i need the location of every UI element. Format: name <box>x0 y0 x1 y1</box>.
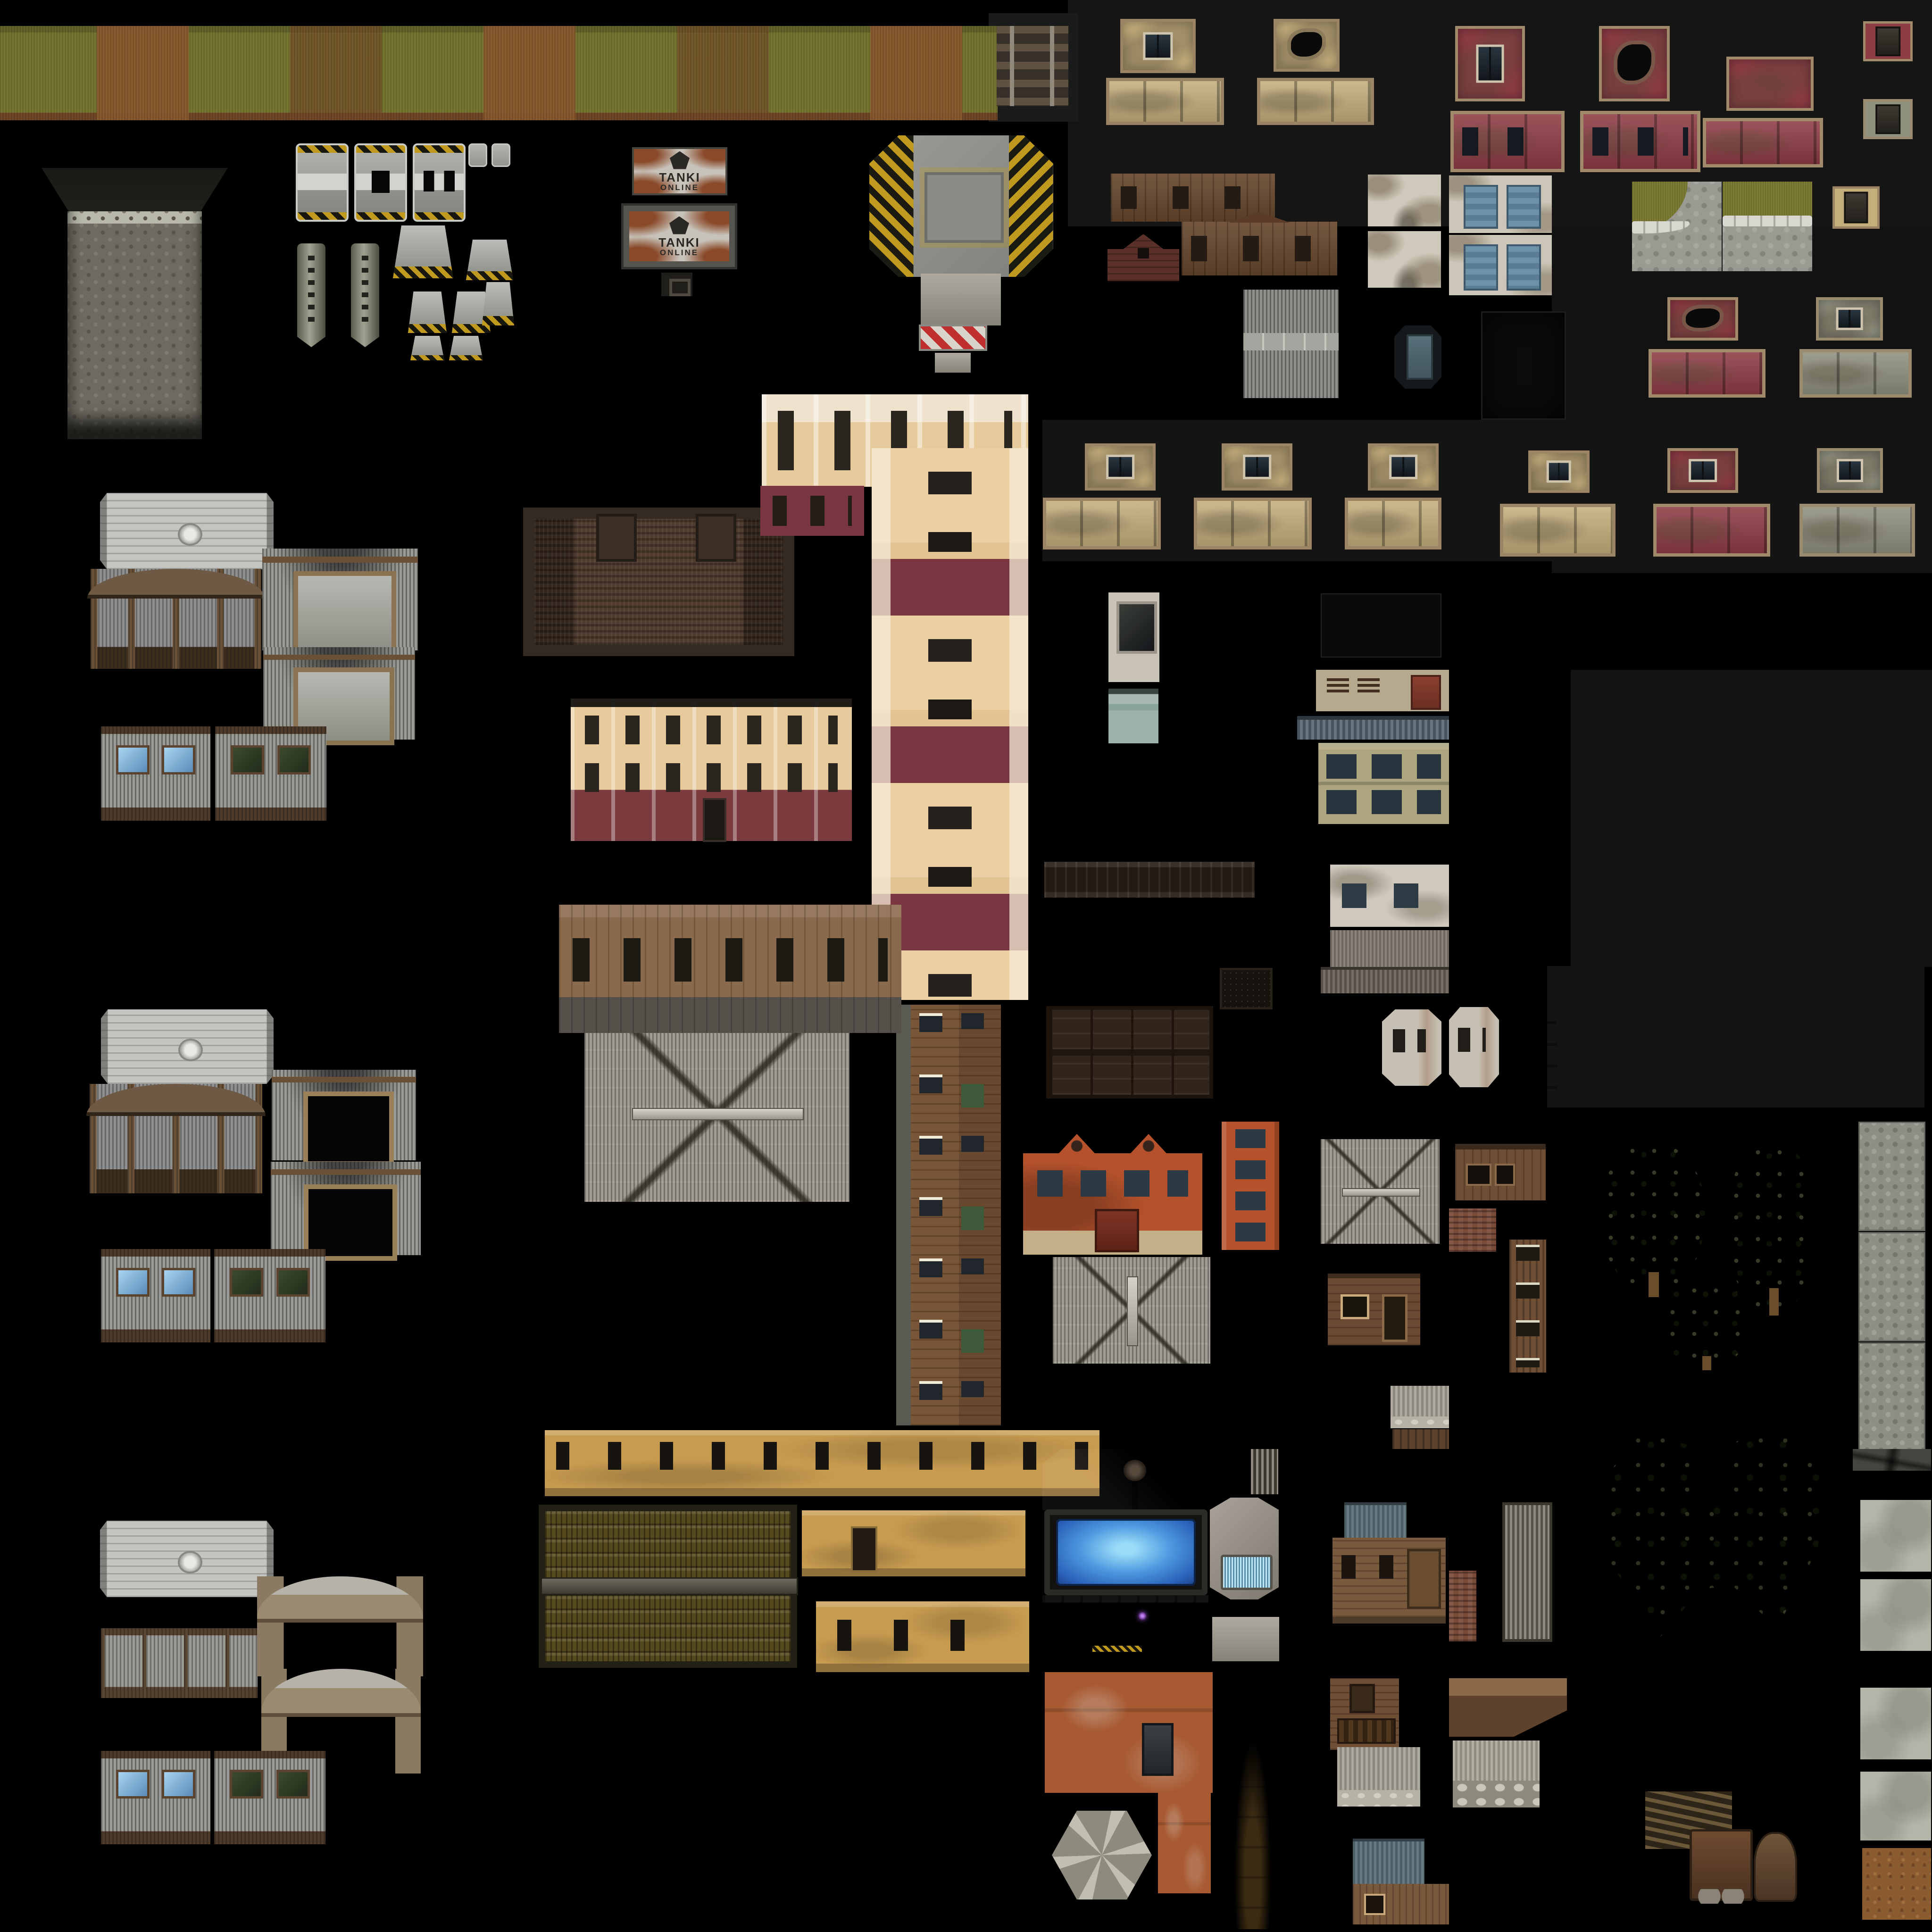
sign-text-line: ONLINE <box>660 249 699 257</box>
roof-corner-piece <box>1449 1678 1567 1737</box>
small-tile-1 <box>468 143 487 167</box>
platform-pedestal <box>921 274 1001 325</box>
tanki-billboard-2: TANKIONLINE <box>624 206 735 267</box>
orange-stucco-wall <box>1045 1672 1213 1793</box>
hip-roof-small-2 <box>1053 1257 1210 1364</box>
texture-atlas: TANKIONLINETANKIONLINE <box>0 0 1932 1932</box>
tan-wall-window-3 <box>1222 443 1292 491</box>
corrugated-edge-strip <box>1321 967 1449 993</box>
white-octagon-plate <box>1382 1009 1441 1086</box>
concrete-tile-1 <box>1860 1500 1931 1572</box>
corrugated-stone-wall <box>1453 1740 1540 1807</box>
brick-gable <box>1108 234 1179 281</box>
hazard-block-side <box>466 240 513 280</box>
arch-bridge-1 <box>257 1576 423 1676</box>
brick-fragments <box>1449 1571 1476 1641</box>
white-wall-cracked-1 <box>1368 175 1441 226</box>
sign-text-line: ONLINE <box>660 183 699 192</box>
shed-roof-3 <box>100 1521 274 1597</box>
rust-pillar <box>1457 966 1515 1013</box>
black-square <box>1481 311 1566 420</box>
brick-chimney <box>1449 1208 1496 1252</box>
log-stack <box>539 1505 797 1668</box>
plank-window-column <box>1509 1240 1546 1373</box>
red-slab-row-2 <box>1649 349 1765 398</box>
tan-slab-row-2 <box>1257 78 1374 125</box>
cabin-wall-windows <box>1332 1538 1446 1624</box>
rust-block <box>1222 910 1265 967</box>
hazard-block-mid-1 <box>408 291 447 333</box>
red-wall-window-2 <box>1667 448 1738 493</box>
gray-slab-row-1 <box>1799 349 1912 398</box>
cobblestone-strip-1 <box>1858 1122 1925 1231</box>
white-wall-cracked-2 <box>1368 231 1441 288</box>
maroon-facade-band <box>760 486 864 536</box>
panel-white-square <box>1108 592 1159 682</box>
dirt-tile <box>1862 1848 1931 1920</box>
silver-rods <box>1251 1449 1278 1494</box>
saloon-wall-2 <box>1182 222 1337 275</box>
tan-wall-window-1 <box>1120 19 1196 73</box>
gray-wall-window-2 <box>1817 448 1883 493</box>
ochre-wall-door <box>802 1510 1025 1576</box>
tree-3 <box>1662 1280 1750 1368</box>
steel-girder-strip <box>1044 862 1255 898</box>
tan-wall-hole-1 <box>1274 19 1340 72</box>
tan-door-panel <box>1832 186 1880 229</box>
metal-bollard-2 <box>351 243 379 347</box>
saloon-wall-1 <box>1111 174 1275 222</box>
console-screen <box>1044 1509 1207 1595</box>
concrete-block <box>1212 1617 1279 1661</box>
shed-wall-blue-1 <box>101 726 210 821</box>
red-door-panel <box>1863 21 1913 61</box>
dark-panel-5 <box>1547 966 1924 1108</box>
tree-1 <box>1600 1140 1706 1294</box>
red-window-row-1 <box>1450 111 1565 172</box>
dark-panel-3 <box>1042 420 1932 561</box>
shed-frame-wall <box>101 1628 258 1698</box>
corrugated-column <box>1502 1502 1552 1642</box>
ochre-wall-windows <box>816 1601 1029 1672</box>
wooden-fort-roof <box>523 508 794 656</box>
hip-roof-large <box>584 1024 849 1202</box>
wood-beam-corner <box>1457 1452 1567 1495</box>
hazard-block-small-2 <box>449 336 483 360</box>
gray-wall-window-1 <box>1816 297 1883 341</box>
corrugated-shed-wall <box>1243 290 1339 398</box>
hazard-block-small-1 <box>410 336 444 360</box>
hangar-front-open-2 <box>271 1162 421 1255</box>
railroad-tile <box>997 26 1068 106</box>
hangar-front-closed-2 <box>263 647 415 740</box>
shed-roof-1 <box>100 493 274 569</box>
tan-slab-row-3 <box>1043 498 1161 550</box>
tree-canopy-large <box>1601 1428 1827 1646</box>
tan-slab-row-6 <box>1500 504 1616 557</box>
shed-wall-green-3 <box>214 1751 325 1844</box>
shed-awning-wall-1 <box>91 569 261 669</box>
shed-roof-2 <box>101 1009 274 1084</box>
hex-canopy <box>1052 1809 1152 1901</box>
shed-wall-green-1 <box>215 726 326 821</box>
shed-wall-green-2 <box>214 1249 325 1342</box>
teal-door-tile <box>1394 325 1441 389</box>
blue-doors-wall-2 <box>1449 235 1552 295</box>
wood-tenement-strip <box>896 1005 1001 1425</box>
gray-door-panel <box>1863 99 1913 139</box>
small-tile-2 <box>491 143 510 167</box>
path-tile-curved <box>1632 182 1722 271</box>
shed-wall-blue-2 <box>101 1249 210 1342</box>
tank-logo-icon <box>670 151 690 169</box>
path-tile-straight <box>1723 182 1812 271</box>
corrugated-piece-small <box>1391 1386 1449 1428</box>
gray-slab-row-2 <box>1799 504 1915 557</box>
barrier-base <box>935 353 971 373</box>
wood-house-front <box>1455 1144 1546 1200</box>
red-slab-row-1 <box>1703 118 1823 167</box>
hazard-block-side-2 <box>482 282 514 325</box>
hangar-front-closed-1 <box>262 549 418 650</box>
teal-wall-piece <box>1108 689 1158 743</box>
red-wall-broken-1 <box>1599 26 1670 101</box>
derrick-tower-1 <box>1045 593 1083 749</box>
red-panel-plain <box>1726 57 1814 111</box>
concrete-tile-3 <box>1860 1688 1931 1759</box>
red-wall-window-1 <box>1455 26 1525 101</box>
tan-slab-row-1 <box>1106 78 1224 125</box>
sign-text-line: TANKI <box>659 171 700 183</box>
black-rect <box>1321 593 1441 658</box>
cabin-roof-piece-1 <box>1344 1502 1407 1538</box>
red-slab-row-3 <box>1653 504 1770 557</box>
tan-wall-window-5 <box>1528 450 1590 493</box>
metal-bollard-1 <box>297 243 325 347</box>
concrete-tile-4 <box>1860 1772 1931 1840</box>
blue-roof-strip <box>1297 716 1449 740</box>
wooden-shack-front <box>1328 1274 1420 1345</box>
wood-shelf-piece <box>1505 1021 1557 1131</box>
white-barred-wall <box>1330 865 1449 927</box>
grass-dirt-strip <box>0 26 998 120</box>
cobblestone-strip-3 <box>1858 1342 1925 1451</box>
cracked-tile <box>1853 1449 1931 1471</box>
mine-cart <box>1690 1829 1753 1901</box>
orange-stucco-column <box>1158 1791 1211 1893</box>
cobblestone-strip-2 <box>1858 1232 1925 1341</box>
hazard-barrier-1 <box>296 143 349 222</box>
ochre-wall-long <box>545 1430 1099 1496</box>
hazard-platform <box>869 135 1053 277</box>
corrugated-fence <box>1330 930 1449 967</box>
white-octagon-2 <box>1449 1007 1499 1087</box>
cabin-wall-hatch <box>1330 1678 1399 1750</box>
cabin-window-wall <box>1353 1884 1449 1924</box>
tan-wall-window-2 <box>1085 443 1156 491</box>
cream-apartment-building <box>571 699 852 841</box>
wood-hatch-piece <box>1392 1429 1449 1449</box>
orange-factory <box>1023 1134 1202 1255</box>
tan-wall-window-4 <box>1368 443 1439 491</box>
red-white-barrier <box>919 325 987 351</box>
tanki-billboard-1: TANKIONLINE <box>632 147 727 195</box>
rusted-white-column <box>1224 1665 1282 1929</box>
blue-doors-wall-1 <box>1449 175 1552 233</box>
stone-watchtower <box>42 168 228 439</box>
sign-text-line: TANKI <box>658 236 700 249</box>
furnace-piece <box>1754 1832 1797 1902</box>
corrugated-panel <box>1337 1747 1420 1807</box>
hazard-block-large <box>393 225 453 278</box>
tan-slab-row-5 <box>1345 498 1441 550</box>
red-wall-hole-2 <box>1667 297 1738 341</box>
tank-logo-icon <box>669 217 689 234</box>
console-chassis <box>1042 1595 1208 1657</box>
cabin-roof-piece-2 <box>1353 1839 1424 1886</box>
hip-roof-small-1 <box>1321 1139 1440 1244</box>
hazard-barrier-2 <box>354 143 407 222</box>
factory-window-wall <box>1318 743 1449 824</box>
tree-2 <box>1725 1141 1821 1312</box>
vent-door-wall <box>1316 670 1449 711</box>
shed-wall-blue-3 <box>101 1751 210 1844</box>
grate-square <box>1220 968 1273 1009</box>
shed-awning-wall-2 <box>90 1084 262 1193</box>
concrete-tile-2 <box>1860 1579 1931 1651</box>
console-hood <box>1042 1449 1227 1510</box>
red-window-row-2 <box>1580 111 1700 172</box>
hangar-front-open-1 <box>272 1070 416 1160</box>
tan-slab-row-4 <box>1194 498 1312 550</box>
billboard-mount <box>661 273 692 296</box>
console-side-panel <box>1210 1498 1279 1599</box>
dark-panel-4 <box>1571 670 1932 967</box>
orange-window-column <box>1222 1122 1279 1250</box>
barn-door-panels <box>1046 1006 1213 1099</box>
hazard-barrier-3 <box>413 143 466 222</box>
wood-plank-building <box>559 905 901 1033</box>
